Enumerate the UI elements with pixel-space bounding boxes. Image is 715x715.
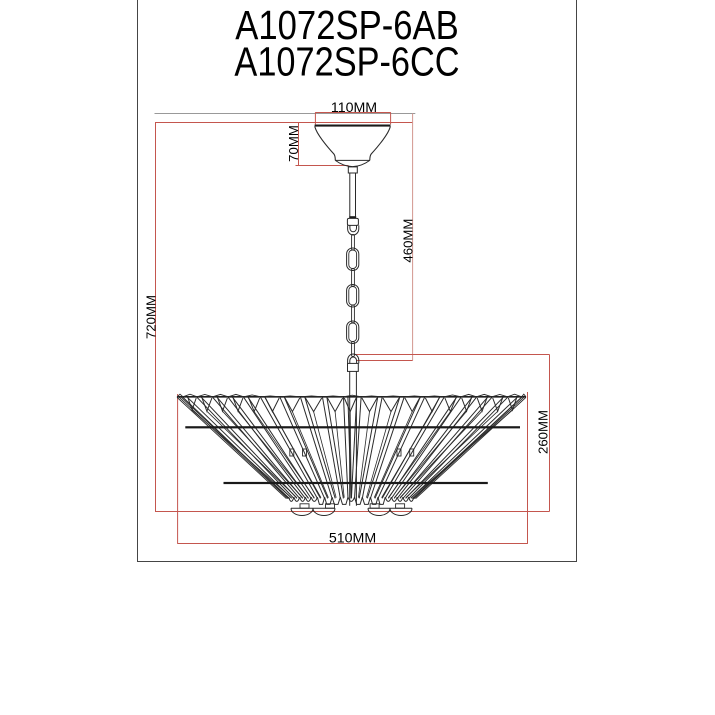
svg-text:260MM: 260MM	[536, 410, 551, 454]
svg-text:A1072SP-6CC: A1072SP-6CC	[234, 39, 459, 84]
svg-text:460MM: 460MM	[400, 219, 415, 263]
svg-text:110MM: 110MM	[331, 100, 377, 116]
svg-text:720MM: 720MM	[144, 295, 159, 339]
svg-text:70MM: 70MM	[286, 125, 301, 162]
svg-text:510MM: 510MM	[329, 530, 376, 546]
